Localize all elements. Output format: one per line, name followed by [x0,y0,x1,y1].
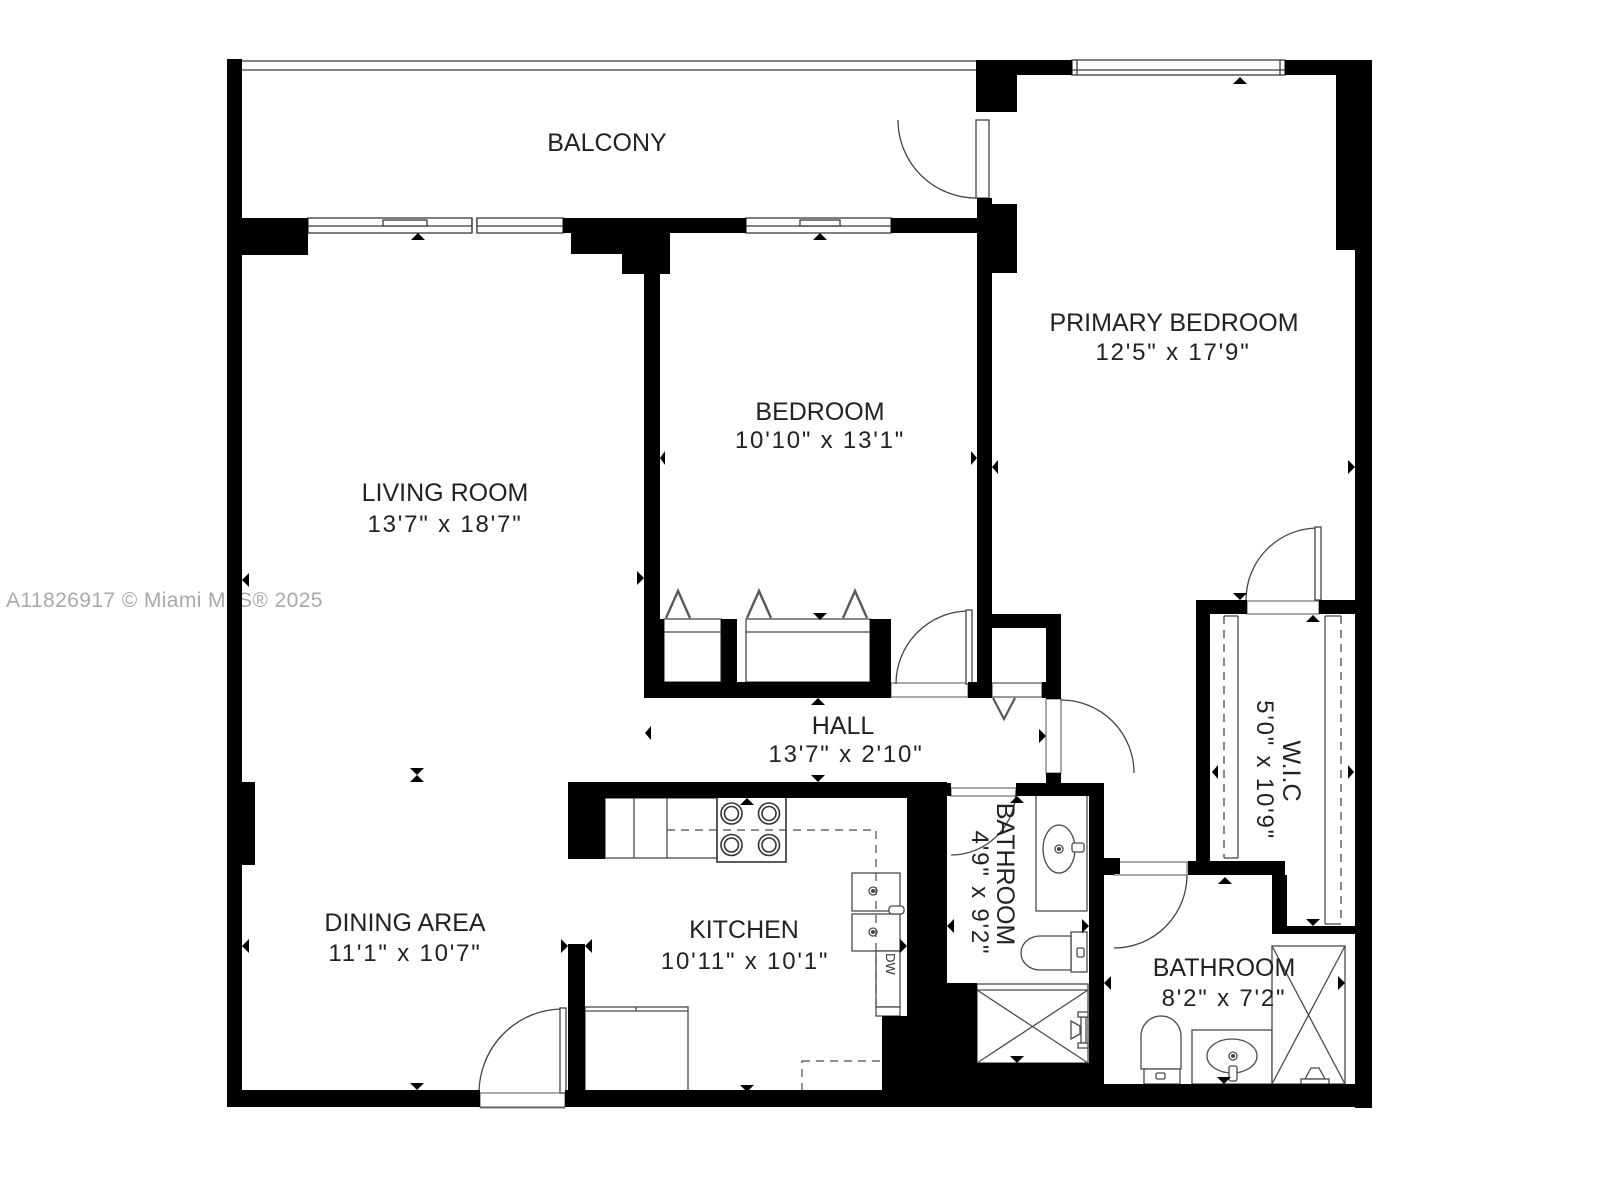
svg-text:BATHROOM: BATHROOM [1153,954,1296,982]
svg-text:BEDROOM: BEDROOM [755,398,884,426]
svg-text:KITCHEN: KITCHEN [689,916,799,944]
svg-text:LIVING ROOM: LIVING ROOM [362,479,529,507]
svg-text:4'9" x 9'2": 4'9" x 9'2" [966,831,993,956]
svg-text:W.I.C: W.I.C [1277,740,1305,801]
svg-text:8'2" x 7'2": 8'2" x 7'2" [1162,985,1287,1012]
svg-text:10'11" x 10'1": 10'11" x 10'1" [661,948,829,975]
svg-text:A11826917 © Miami MLS® 2025: A11826917 © Miami MLS® 2025 [6,589,323,612]
svg-text:13'7" x 18'7": 13'7" x 18'7" [367,511,522,538]
svg-text:DW: DW [883,953,898,975]
svg-text:BALCONY: BALCONY [547,129,667,157]
svg-text:HALL: HALL [812,712,875,740]
svg-text:12'5" x 17'9": 12'5" x 17'9" [1095,339,1250,366]
svg-text:11'1" x 10'7": 11'1" x 10'7" [328,940,481,967]
svg-text:BATHROOM: BATHROOM [991,803,1019,946]
svg-text:PRIMARY BEDROOM: PRIMARY BEDROOM [1049,309,1298,337]
svg-text:10'10" x 13'1": 10'10" x 13'1" [735,427,905,454]
svg-text:DINING AREA: DINING AREA [324,909,485,937]
svg-text:13'7" x 2'10": 13'7" x 2'10" [768,741,923,768]
svg-text:5'0" x 10'9": 5'0" x 10'9" [1251,700,1278,840]
